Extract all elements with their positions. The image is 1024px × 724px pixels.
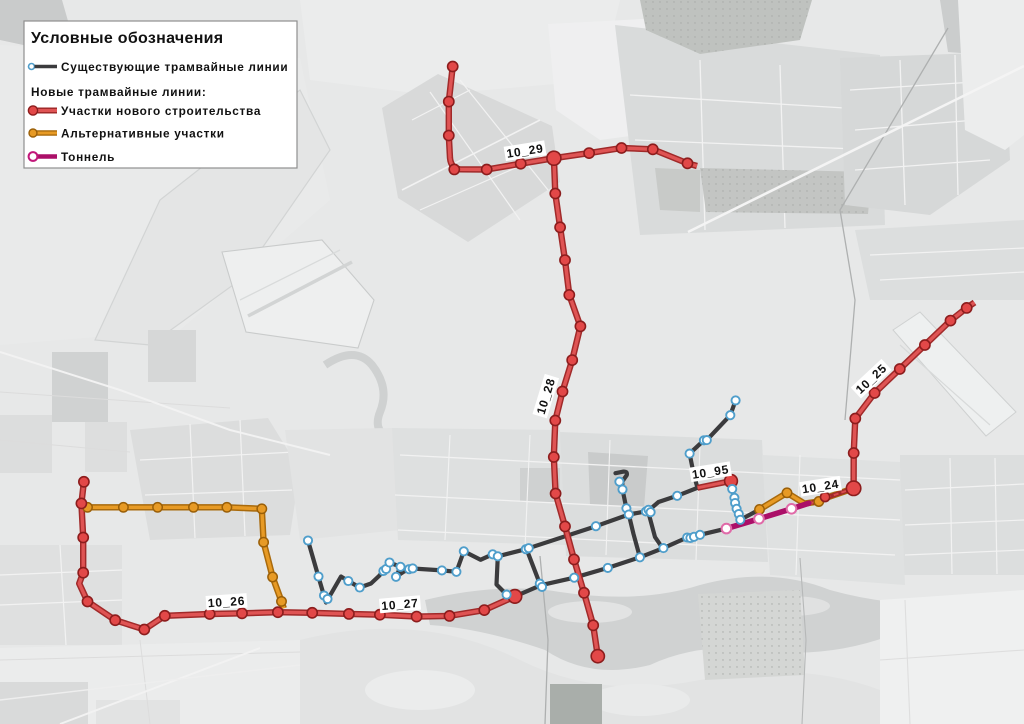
- svg-text:Альтернативные участки: Альтернативные участки: [61, 127, 225, 141]
- svg-text:Существующие трамвайные линии: Существующие трамвайные линии: [61, 60, 288, 74]
- svg-text:10_26: 10_26: [207, 594, 245, 611]
- svg-text:Тоннель: Тоннель: [61, 150, 115, 164]
- svg-text:Условные обозначения: Условные обозначения: [31, 30, 223, 47]
- svg-text:Участки нового строительства: Участки нового строительства: [61, 104, 261, 118]
- svg-text:Новые трамвайные линии:: Новые трамвайные линии:: [31, 85, 207, 99]
